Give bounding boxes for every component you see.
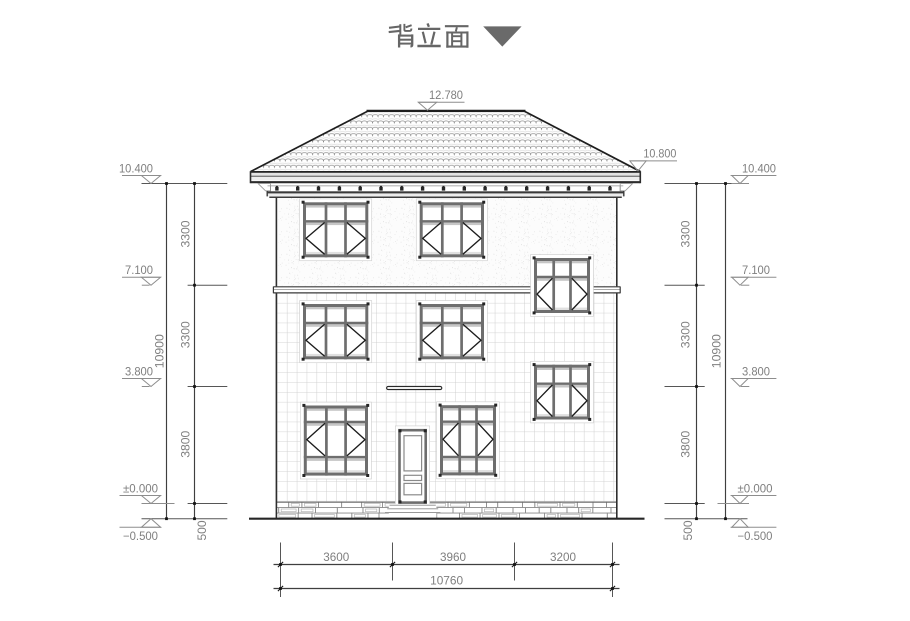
svg-text:3200: 3200 [550, 551, 576, 564]
svg-text:7.100: 7.100 [125, 264, 153, 277]
svg-text:−0.500: −0.500 [123, 530, 158, 543]
svg-text:3300: 3300 [179, 221, 192, 248]
svg-text:±0.000: ±0.000 [123, 482, 158, 495]
svg-text:10.800: 10.800 [643, 148, 676, 161]
svg-text:3600: 3600 [323, 551, 349, 564]
svg-text:3.800: 3.800 [125, 365, 153, 378]
svg-text:−0.500: −0.500 [738, 530, 773, 543]
svg-text:7.100: 7.100 [742, 264, 770, 277]
svg-text:3300: 3300 [679, 321, 692, 348]
svg-text:3960: 3960 [440, 551, 466, 564]
svg-text:10.400: 10.400 [742, 162, 776, 175]
svg-text:500: 500 [682, 521, 695, 541]
svg-text:±0.000: ±0.000 [738, 482, 773, 495]
svg-text:3800: 3800 [179, 431, 192, 458]
svg-text:3.800: 3.800 [742, 365, 770, 378]
svg-text:10.400: 10.400 [119, 162, 153, 175]
svg-text:10900: 10900 [154, 334, 167, 368]
svg-text:10760: 10760 [430, 575, 463, 588]
svg-text:500: 500 [196, 521, 209, 541]
svg-text:3800: 3800 [679, 431, 692, 458]
svg-text:10900: 10900 [710, 334, 723, 368]
svg-text:3300: 3300 [179, 321, 192, 348]
svg-text:12.780: 12.780 [429, 89, 463, 102]
svg-text:3300: 3300 [679, 221, 692, 248]
